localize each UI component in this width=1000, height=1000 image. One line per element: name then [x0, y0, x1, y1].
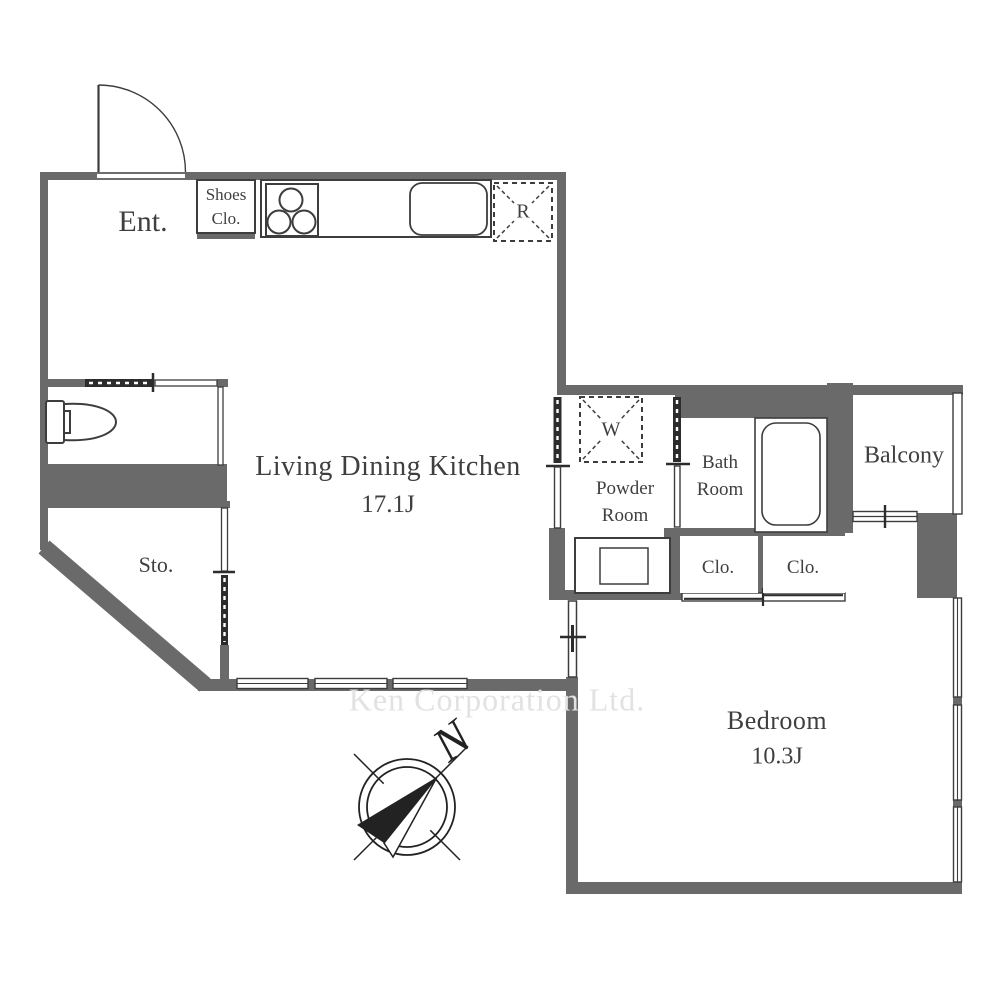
powder-room-line2: Room: [602, 505, 648, 526]
sink-icon: [410, 183, 487, 235]
bathtub-icon: [755, 418, 827, 532]
bath-room-line1: Bath: [702, 452, 738, 473]
powder-room-line1: Powder: [596, 478, 654, 499]
room-label-closet-right: Clo.: [787, 557, 819, 579]
room-size-ldk: 17.1J: [361, 491, 414, 519]
room-label-ldk: Living Dining Kitchen: [255, 451, 521, 483]
washer-mark: W: [602, 419, 621, 442]
room-label-powder-room: Powder Room: [596, 476, 654, 530]
room-label-entrance: Ent.: [118, 205, 167, 239]
toilet-icon: [46, 401, 116, 443]
room-label-storage: Sto.: [139, 552, 174, 578]
vanity-icon: [575, 538, 670, 593]
room-size-bedroom: 10.3J: [751, 744, 802, 771]
room-label-bedroom: Bedroom: [727, 706, 827, 736]
floorplan-drawing: [0, 0, 1000, 1000]
walls: [40, 172, 963, 894]
room-label-balcony: Balcony: [864, 443, 944, 470]
watermark: Ken Corporation Ltd.: [349, 682, 645, 719]
room-label-shoes-closet: Shoes Clo.: [206, 183, 247, 231]
shoes-closet-line2: Clo.: [212, 209, 241, 228]
bath-room-line2: Room: [697, 479, 743, 500]
shoes-closet-line1: Shoes: [206, 185, 247, 204]
room-label-closet-left: Clo.: [702, 557, 734, 579]
room-label-bath-room: Bath Room: [697, 450, 743, 504]
refrigerator-mark: R: [516, 201, 529, 224]
entrance-door-icon: [97, 85, 186, 180]
stove-icon: [266, 184, 318, 236]
floorplan: Ken Corporation Ltd. Ent. Shoes Clo. Liv…: [0, 0, 1000, 1000]
